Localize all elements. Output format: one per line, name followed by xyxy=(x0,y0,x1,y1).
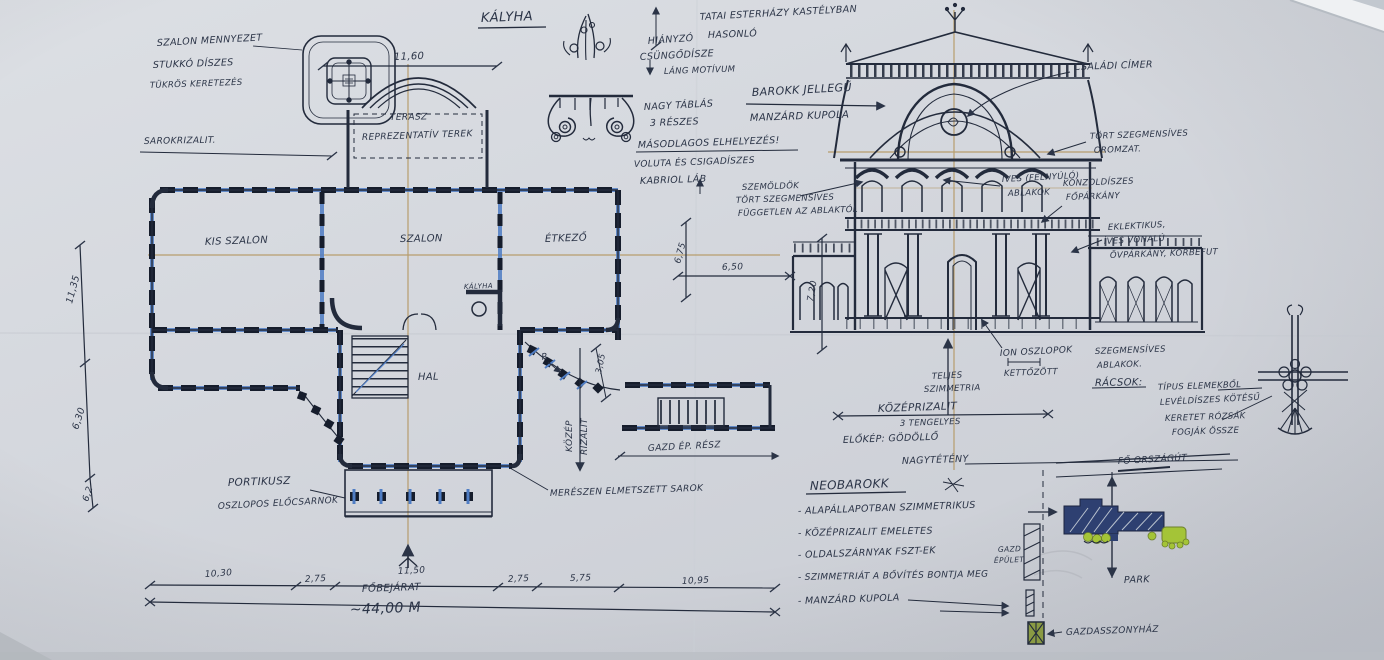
label-rizalit: RIZALIT xyxy=(580,417,590,455)
label-portikusz: PORTIKUSZ xyxy=(228,475,292,489)
label-gazd-1: GAZD xyxy=(998,544,1022,554)
label-3reszes: 3 RÉSZES xyxy=(650,115,699,129)
label-park: PARK xyxy=(1124,574,1151,586)
label-szegmens-2: ABLAKOK. xyxy=(1096,359,1143,371)
label-sarokrizalit: SAROKRIZALIT. xyxy=(144,136,216,147)
label-dim-w5: 5,75 xyxy=(570,573,592,584)
label-kabriol: KABRIOL LÁB xyxy=(640,173,707,187)
label-neobarokk: NEOBAROKK xyxy=(810,476,890,493)
label-terasz: TERASZ xyxy=(390,112,428,123)
label-dim-1160: 11,60 xyxy=(394,51,425,63)
label-szalon: SZALON xyxy=(400,233,443,245)
label-dim-w6: 10,95 xyxy=(682,576,710,587)
label-teljes-1: TELJES xyxy=(932,370,963,382)
label-dim-w4: 2,75 xyxy=(508,574,530,585)
label-racsok: RÁCSOK: xyxy=(1095,375,1143,389)
label-tatai-2: HASONLÓ xyxy=(708,27,758,41)
sketch-photo: KÁLYHA SZALON MENNYEZET STUKKÓ DÍSZES TÜ… xyxy=(0,0,1384,660)
label-szemoldok-1: SZEMÖLDÖK xyxy=(742,180,801,193)
label-nagyteteny: NAGYTÉTÉNY xyxy=(902,453,970,467)
label-dim-w3: 11,50 xyxy=(398,566,426,577)
label-dim-650: 6,50 xyxy=(722,262,744,273)
label-dim-total: ~44,00 M xyxy=(350,600,422,618)
label-kalyha-small: KÁLYHA xyxy=(464,281,493,291)
architectural-sketch: KÁLYHA SZALON MENNYEZET STUKKÓ DÍSZES TÜ… xyxy=(0,0,1384,660)
label-kozep: KÖZÉP xyxy=(563,420,575,452)
label-tengelyes: 3 TENGELYES xyxy=(900,417,961,429)
label-oromzat-2: OROMZAT. xyxy=(1094,144,1142,156)
label-dim-w1: 10,30 xyxy=(205,568,233,580)
label-neo-2: - KÖZÉPRIZALIT EMELETES xyxy=(798,525,933,539)
label-teljes-2: SZIMMETRIA xyxy=(924,383,981,395)
label-dim-w2: 2,75 xyxy=(305,574,327,585)
label-kalyha-title: KÁLYHA xyxy=(481,8,534,26)
label-ion-2: KETTŐZÖTT xyxy=(1004,366,1059,379)
label-kis-szalon: KIS SZALON xyxy=(205,235,269,248)
label-hall: HAL xyxy=(418,372,439,383)
label-felnyulo-2: ABLAKOK xyxy=(1007,187,1052,199)
label-gazd-2: ÉPÜLET xyxy=(994,555,1026,565)
